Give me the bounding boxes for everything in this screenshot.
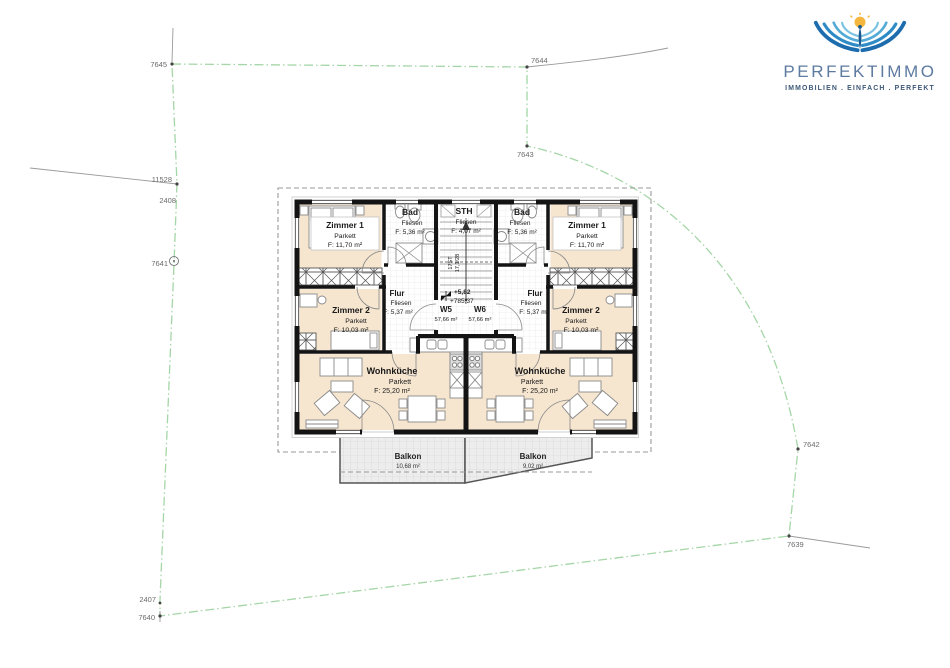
room-badr-area: F: 5,36 m² xyxy=(507,229,537,236)
room-flurl-area: F: 5,37 m² xyxy=(383,309,413,316)
room-z2r-name: Zimmer 2 xyxy=(562,305,600,315)
room-z2l-finish: Parkett xyxy=(345,318,367,325)
room-z1l-finish: Parkett xyxy=(334,233,356,240)
balconies: Balkon 10,68 m² Balkon 9,02 m² xyxy=(340,437,592,483)
balcony-left-name: Balkon xyxy=(395,452,422,461)
unit-w6-id: W6 xyxy=(474,305,487,314)
site-plan-svg: 7645 7644 7643 11528 2408 7641 7642 7639… xyxy=(0,0,950,668)
room-badr-finish: Fliesen xyxy=(510,220,531,227)
parcel-label-7644: 7644 xyxy=(531,56,548,65)
room-wkl-finish: Parkett xyxy=(389,379,411,386)
parcel-label-7645: 7645 xyxy=(150,60,167,69)
room-flurl-finish: Fliesen xyxy=(391,300,412,307)
page: 7645 7644 7643 11528 2408 7641 7642 7639… xyxy=(0,0,950,668)
room-wkl-name: Wohnküche xyxy=(367,366,418,376)
parcel-label-2407: 2407 xyxy=(139,595,156,604)
room-z2r-area: F: 10,03 m² xyxy=(564,327,599,334)
parcel-label-11528: 11528 xyxy=(152,175,172,184)
unit-w5-area: 57,66 m² xyxy=(435,317,458,323)
room-wkr-area: F: 25,20 m² xyxy=(522,388,558,395)
room-z2r-finish: Parkett xyxy=(565,318,587,325)
room-flurr-name: Flur xyxy=(527,289,542,298)
parcel-label-7642: 7642 xyxy=(803,440,820,449)
parcel-label-2408: 2408 xyxy=(159,196,176,205)
room-badl-area: F: 5,36 m² xyxy=(395,229,425,236)
room-sth-finish: Fliesen xyxy=(456,219,477,226)
room-wkl-area: F: 25,20 m² xyxy=(374,388,410,395)
balcony-left-area: 10,68 m² xyxy=(396,464,420,470)
room-badl-name: Bad xyxy=(402,207,418,217)
room-sth-name: STH xyxy=(456,206,473,216)
level-absolute-label: +785,37 xyxy=(450,298,474,305)
logo-tagline: IMMOBILIEN . EINFACH . PERFEKT xyxy=(780,85,940,92)
room-flurr-finish: Fliesen xyxy=(521,300,542,307)
building: Zimmer 1 Parkett F: 11,70 m² Bad Fliesen… xyxy=(291,196,639,438)
parcel-label-7640: 7640 xyxy=(138,613,155,622)
room-badr-name: Bad xyxy=(514,207,530,217)
room-flurl-name: Flur xyxy=(389,289,404,298)
room-z1r-name: Zimmer 1 xyxy=(568,220,606,230)
room-wkr-finish: Parkett xyxy=(521,379,543,386)
balcony-right-area: 9,02 m² xyxy=(523,464,543,470)
parcel-label-7641: 7641 xyxy=(151,259,168,268)
stair-steps-label: 17ST xyxy=(448,256,454,270)
logo-bird-icon xyxy=(812,12,908,55)
parcel-label-7643: 7643 xyxy=(517,150,534,159)
logo: PERFEKTIMMO IMMOBILIEN . EINFACH . PERFE… xyxy=(780,12,940,92)
balcony-right-name: Balkon xyxy=(520,452,547,461)
closet-hatch xyxy=(299,333,316,350)
stair-ratio-label: 17,1/28 xyxy=(455,254,461,272)
room-badl-finish: Fliesen xyxy=(402,220,423,227)
room-z2l-area: F: 10,03 m² xyxy=(334,327,369,334)
room-wkr-name: Wohnküche xyxy=(515,366,566,376)
unit-w6-area: 57,66 m² xyxy=(469,317,492,323)
room-z2l-name: Zimmer 2 xyxy=(332,305,370,315)
room-z1l-name: Zimmer 1 xyxy=(326,220,364,230)
room-flurr-area: F: 5,37 m² xyxy=(519,309,549,316)
wardrobe-hatch xyxy=(299,268,382,285)
logo-brand: PERFEKTIMMO xyxy=(780,62,940,82)
room-z1r-area: F: 11,70 m² xyxy=(570,242,605,249)
room-sth-area: F: 4,07 m² xyxy=(451,228,481,235)
parcel-label-7639: 7639 xyxy=(787,540,804,549)
level-upper-label: +5,82 xyxy=(454,289,471,296)
room-z1r-finish: Parkett xyxy=(576,233,598,240)
room-z1l-area: F: 11,70 m² xyxy=(328,242,363,249)
unit-w5-id: W5 xyxy=(440,305,453,314)
